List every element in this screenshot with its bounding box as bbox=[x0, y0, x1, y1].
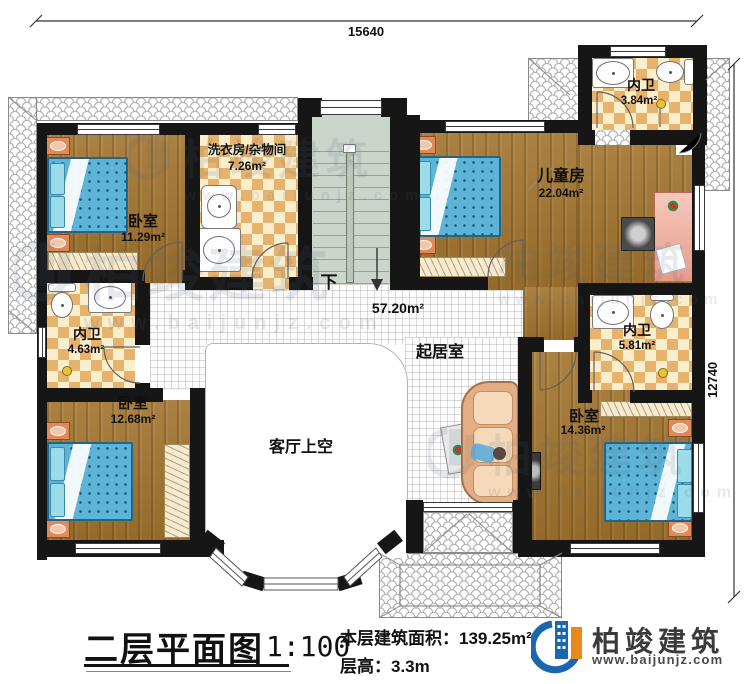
floor-height-value: 3.3m bbox=[391, 657, 430, 676]
kids-room-floor bbox=[523, 287, 578, 340]
sofa bbox=[461, 381, 519, 505]
pillow bbox=[677, 449, 692, 483]
washer-drum bbox=[207, 194, 231, 218]
floor-area-value: 139.25m² bbox=[459, 629, 532, 648]
window bbox=[75, 543, 161, 554]
wall bbox=[197, 277, 253, 290]
desk-plant bbox=[666, 199, 680, 213]
wall bbox=[298, 98, 312, 290]
wall bbox=[405, 277, 488, 290]
laundry-sink bbox=[203, 236, 235, 264]
wall bbox=[692, 283, 705, 557]
computer-monitor bbox=[621, 217, 655, 251]
pillow bbox=[50, 196, 65, 228]
nightstand bbox=[46, 137, 70, 155]
window bbox=[77, 124, 160, 135]
window bbox=[320, 100, 382, 115]
window bbox=[38, 327, 46, 358]
room-name-bedroom-sw: 卧室 bbox=[118, 396, 148, 413]
toilet-bowl bbox=[650, 301, 674, 329]
person-head bbox=[493, 447, 506, 460]
hall-floor bbox=[150, 283, 205, 390]
toilet-tank bbox=[48, 283, 76, 292]
window bbox=[694, 185, 705, 251]
wall bbox=[406, 500, 423, 553]
pillow bbox=[50, 163, 65, 195]
wall bbox=[37, 270, 145, 283]
wall bbox=[578, 130, 595, 145]
room-name-living: 起居室 bbox=[416, 344, 464, 362]
window bbox=[693, 443, 704, 513]
sofa-cushion bbox=[473, 391, 513, 425]
door-stop bbox=[658, 368, 668, 378]
window bbox=[570, 543, 660, 554]
room-name-bath-w: 内卫 bbox=[73, 327, 101, 342]
wall bbox=[518, 337, 544, 352]
wall bbox=[190, 388, 205, 557]
sofa-cushion bbox=[473, 465, 513, 497]
toilet-tank bbox=[650, 294, 674, 301]
title-underline-thick bbox=[84, 664, 289, 667]
wall bbox=[135, 283, 150, 345]
dimension-right: 12740 bbox=[705, 362, 720, 398]
wardrobe bbox=[412, 257, 506, 277]
title-underline-thin bbox=[86, 671, 291, 672]
room-name-bath-ne: 内卫 bbox=[627, 78, 655, 93]
floor-height-line: 层高：3.3m bbox=[340, 652, 430, 677]
floor-height-label: 层高： bbox=[340, 657, 391, 676]
wall bbox=[578, 283, 705, 295]
stair-rail-head bbox=[343, 144, 356, 153]
room-name-bath-e: 内卫 bbox=[623, 323, 651, 338]
wall bbox=[390, 115, 420, 290]
floor-plan-sheet: 卧室 11.29m² 洗衣房/杂物间 7.26m² 儿童房 22.04m² 内卫… bbox=[0, 0, 750, 684]
wall bbox=[578, 45, 592, 133]
sink-basin bbox=[596, 61, 630, 85]
room-area-bath-w: 4.63m² bbox=[68, 344, 104, 357]
sink-basin bbox=[94, 286, 126, 309]
room-name-void: 客厅上空 bbox=[269, 439, 333, 457]
floor-area-label: 本层建筑面积： bbox=[340, 629, 459, 648]
room-area-living: 57.20m² bbox=[372, 301, 424, 316]
pillow bbox=[50, 483, 65, 517]
toilet-bowl bbox=[51, 292, 73, 318]
roof-porch-hip bbox=[423, 512, 513, 553]
room-name-laundry: 洗衣房/杂物间 bbox=[208, 144, 286, 158]
wall bbox=[182, 270, 198, 283]
balcony-door bbox=[423, 502, 513, 512]
door-stop-stem bbox=[659, 107, 661, 127]
wall bbox=[135, 383, 150, 390]
room-name-kids: 儿童房 bbox=[537, 168, 585, 186]
door-stop bbox=[62, 366, 72, 376]
room-area-bath-e: 5.81m² bbox=[619, 340, 655, 353]
nightstand bbox=[46, 422, 70, 440]
window bbox=[445, 121, 545, 132]
wall bbox=[630, 130, 707, 145]
brand-website: www.baijunjz.com bbox=[592, 652, 723, 667]
window bbox=[258, 124, 296, 135]
wall bbox=[578, 390, 592, 403]
roof-northwest-horizontal bbox=[8, 97, 298, 121]
plan-scale: 1:100 bbox=[266, 630, 350, 663]
room-area-laundry: 7.26m² bbox=[228, 160, 266, 173]
floor-area-line: 本层建筑面积：139.25m² bbox=[340, 624, 532, 649]
stair-railing bbox=[346, 150, 354, 283]
room-area-bedroom-sw: 12.68m² bbox=[111, 413, 156, 426]
window bbox=[610, 46, 666, 57]
nightstand bbox=[46, 520, 70, 538]
wall bbox=[185, 135, 200, 290]
nightstand bbox=[46, 234, 70, 252]
room-area-bath-ne: 3.84m² bbox=[621, 95, 657, 108]
wall bbox=[574, 337, 580, 352]
roof-porch-main bbox=[379, 553, 562, 618]
wardrobe bbox=[600, 401, 692, 417]
wardrobe bbox=[164, 444, 190, 538]
roof-northwest-vertical bbox=[8, 97, 37, 334]
nightstand bbox=[668, 419, 692, 437]
dimension-top: 15640 bbox=[348, 24, 384, 39]
door-stop bbox=[656, 99, 666, 109]
brand-logo-icon bbox=[531, 615, 587, 675]
room-area-kids: 22.04m² bbox=[539, 187, 584, 200]
stairs-down-label: 下 bbox=[321, 274, 338, 293]
pillow bbox=[50, 447, 65, 481]
wall bbox=[513, 500, 532, 553]
toilet-bowl bbox=[656, 61, 684, 83]
room-area-bedroom-nw: 11.29m² bbox=[121, 231, 165, 244]
room-name-bedroom-nw: 卧室 bbox=[128, 214, 158, 231]
room-area-bedroom-se: 14.36m² bbox=[561, 424, 606, 437]
pillow bbox=[677, 484, 692, 518]
